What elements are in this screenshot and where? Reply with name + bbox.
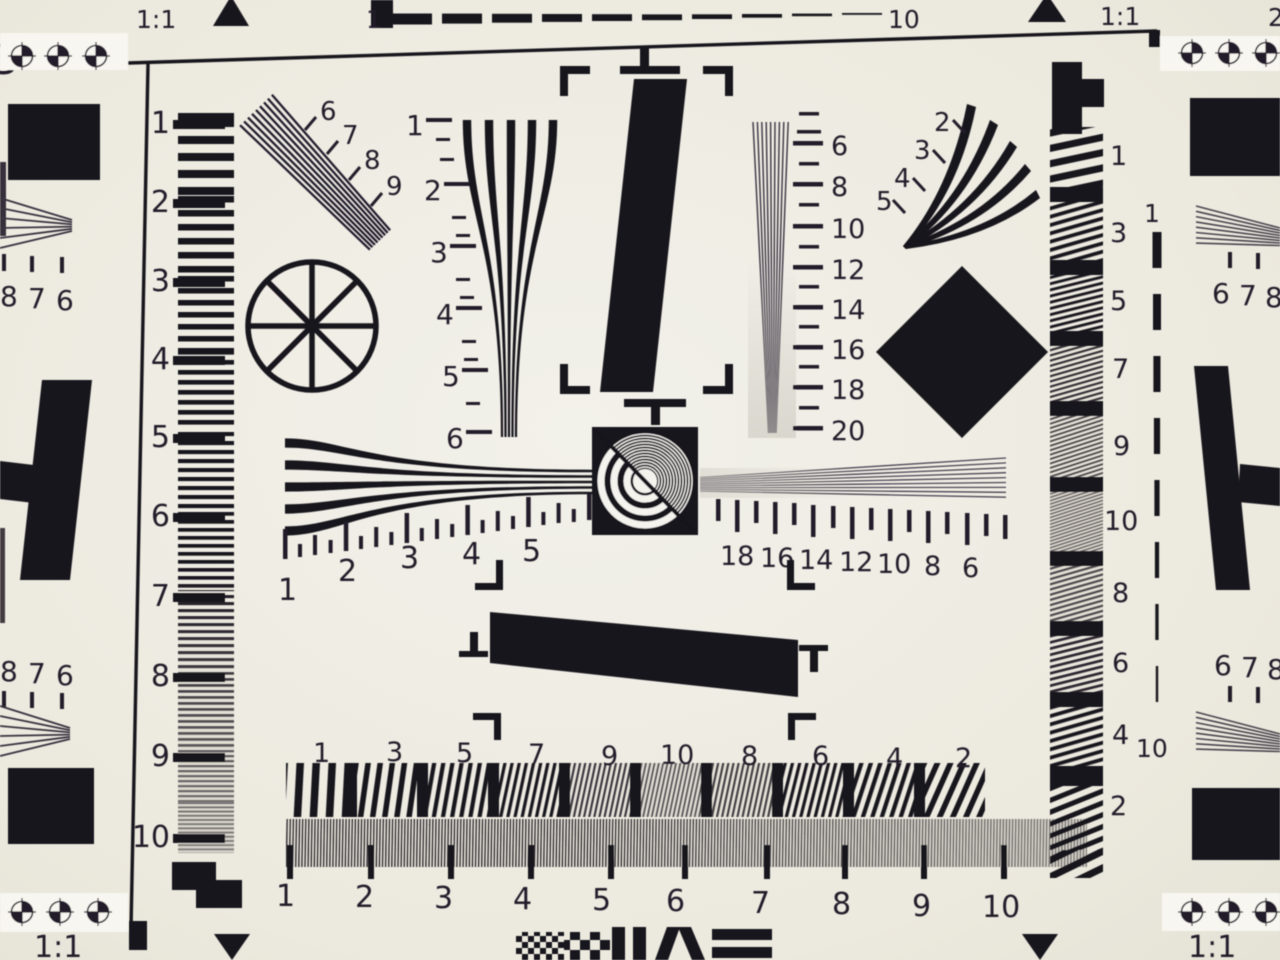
ruler-label: 3 — [400, 541, 419, 576]
partial-number: 2 — [1268, 3, 1280, 32]
ruler-label: 4 — [462, 537, 481, 572]
strip-label: 3 — [1110, 218, 1127, 249]
wedge-label: 5 — [876, 187, 893, 217]
strip-label: 6 — [1112, 648, 1129, 679]
left-scale-label: 4 — [151, 342, 170, 377]
scale-ratio-label: 1:1 — [136, 5, 176, 34]
wedge-label: 2 — [934, 108, 951, 138]
ruler-label: 1 — [278, 573, 297, 608]
strip-label: 7 — [1112, 354, 1129, 385]
left-scale-label: 10 — [132, 820, 170, 855]
row-label: 9 — [601, 741, 618, 772]
ruler-label: 18 — [720, 541, 754, 572]
spoke-wheel-target — [248, 262, 376, 390]
left-scale-label: 5 — [151, 420, 170, 455]
wedge-scale-label: 14 — [831, 295, 865, 326]
edge-number: 6 — [56, 284, 74, 317]
strip-label: 2 — [1110, 791, 1127, 822]
row-label: 8 — [741, 741, 758, 772]
row-label: 2 — [955, 743, 972, 774]
edge-number: 8 — [1267, 653, 1280, 686]
left-scale-label: 8 — [151, 659, 170, 694]
dash-scale-start: 1 — [366, 5, 382, 34]
row-label: 1 — [313, 738, 330, 769]
scale-ratio-label: 1:1 — [1188, 930, 1236, 960]
row-label: 5 — [456, 738, 473, 769]
dash-scale-end: 10 — [1136, 734, 1168, 763]
ruler-label: 14 — [799, 545, 833, 576]
ruler-label: 2 — [338, 554, 357, 589]
left-scale-label: 9 — [151, 739, 170, 774]
ruler-label: 7 — [751, 886, 770, 921]
edge-number: 7 — [1241, 651, 1259, 684]
wedge-label: 6 — [320, 97, 337, 127]
wedge-scale-label: 3 — [430, 236, 448, 269]
edge-number: 8 — [0, 280, 18, 313]
edge-number: 7 — [28, 282, 46, 315]
edge-number: 6 — [1214, 649, 1232, 682]
row-label: 3 — [386, 737, 403, 768]
strip-label: 4 — [1112, 720, 1129, 751]
ruler-label: 8 — [832, 887, 851, 922]
wedge-scale-label: 1 — [406, 109, 424, 142]
wedge-label: 7 — [342, 121, 359, 151]
ruler-label: 12 — [839, 547, 873, 578]
wedge-label: 9 — [386, 172, 403, 202]
wedge-scale-label: 5 — [442, 360, 460, 393]
strip-label: 8 — [1112, 578, 1129, 609]
row-label: 10 — [660, 740, 694, 771]
ruler-label: 1 — [276, 879, 295, 914]
edge-number: 8 — [0, 655, 18, 688]
wedge-scale-label: 20 — [831, 416, 865, 447]
ruler-label: 2 — [355, 880, 374, 915]
left-scale-label: 3 — [151, 264, 170, 299]
ruler-label: 3 — [434, 881, 453, 916]
wedge-label: 8 — [364, 146, 381, 176]
ruler-label: 9 — [912, 889, 931, 924]
ruler-label: 5 — [592, 883, 611, 918]
wedge-label: 4 — [894, 164, 911, 194]
wedge-scale-label: 8 — [831, 172, 848, 203]
dash-scale-start: 1 — [1144, 199, 1160, 228]
wedge-scale-label: 10 — [831, 214, 865, 245]
strip-label: 10 — [1104, 506, 1138, 537]
strip-label: 1 — [1110, 141, 1127, 172]
edge-number: 8 — [1265, 281, 1280, 314]
left-scale-label: 2 — [151, 185, 170, 220]
dash-scale-end: 10 — [888, 5, 920, 34]
wedge-scale-label: 12 — [831, 255, 865, 286]
scale-ratio-label: 1:1 — [34, 930, 82, 960]
ruler-label: 6 — [962, 553, 979, 584]
ruler-label: 10 — [982, 890, 1020, 925]
ruler-label: 5 — [522, 534, 541, 569]
wedge-scale-label: 18 — [831, 375, 865, 406]
strip-label: 9 — [1113, 431, 1130, 462]
wedge-scale-label: 6 — [446, 422, 464, 455]
wedge-scale-label: 2 — [424, 174, 442, 207]
test-chart-photo: 3 1:1 1:1 2 1 10 1 2 3 4 5 — [0, 0, 1280, 960]
edge-number: 6 — [1212, 277, 1230, 310]
ruler-label: 10 — [877, 549, 911, 580]
scale-ratio-label: 1:1 — [1100, 2, 1140, 31]
wedge-label: 3 — [914, 136, 931, 166]
row-label: 4 — [886, 743, 903, 774]
strip-label: 5 — [1110, 286, 1127, 317]
wedge-scale-label: 16 — [831, 335, 865, 366]
iso12233-chart: 3 1:1 1:1 2 1 10 1 2 3 4 5 — [0, 0, 1280, 960]
wedge-scale-label: 6 — [831, 131, 848, 162]
ruler-label: 8 — [924, 551, 941, 582]
row-label: 6 — [812, 741, 829, 772]
left-scale-label: 7 — [151, 579, 170, 614]
row-label: 7 — [528, 739, 545, 770]
edge-number: 6 — [56, 659, 74, 692]
left-scale-label: 6 — [151, 499, 170, 534]
edge-number: 7 — [28, 657, 46, 690]
wedge-scale-label: 4 — [436, 298, 454, 331]
ruler-label: 6 — [666, 884, 685, 919]
ruler-label: 4 — [513, 882, 532, 917]
center-ring-target — [592, 427, 698, 535]
left-scale-label: 1 — [151, 106, 170, 141]
edge-number: 7 — [1239, 279, 1257, 312]
